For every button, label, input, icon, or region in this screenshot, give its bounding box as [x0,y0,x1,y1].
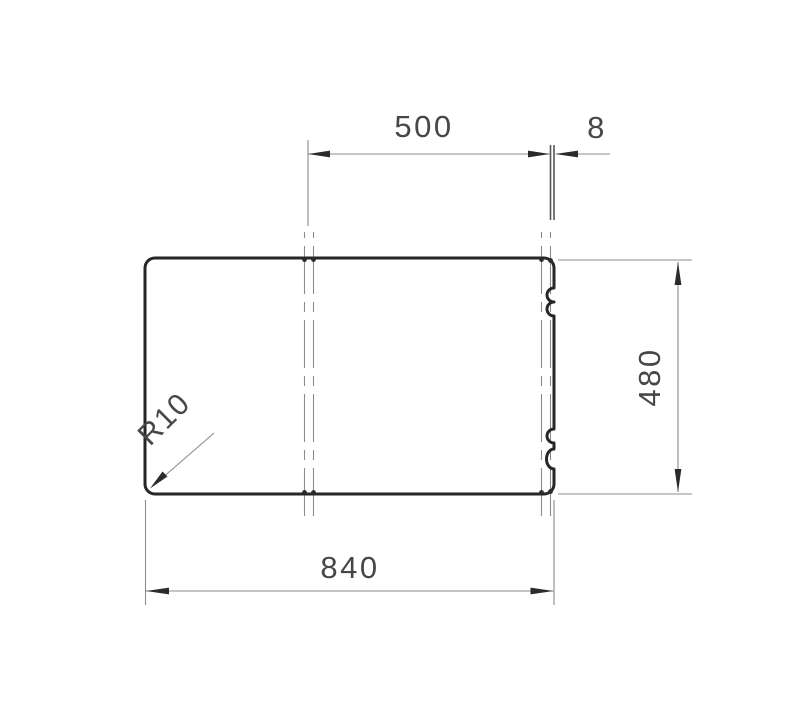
intersection-dot [539,257,544,262]
intersection-dot [311,490,316,495]
dimension-480: 480 [558,260,692,494]
arrowhead-right-icon [531,588,554,595]
dimension-840: 840 [146,500,555,605]
intersection-dot [302,490,307,495]
dim-label-8: 8 [587,110,607,145]
intersection-dot [302,257,307,262]
centerline-right-pair [542,232,551,518]
arrowhead-left-icon [146,588,169,595]
dim-label-480: 480 [632,347,667,406]
intersection-dot [548,489,553,494]
cutout-outline [145,258,554,494]
dim-label-500: 500 [394,109,453,144]
intersection-dots [302,257,553,495]
centerline-left-pair [305,232,314,518]
arrowhead-down-icon [675,469,682,492]
drawing-canvas: 500 8 480 840 R10 [0,0,810,716]
dim-label-840: 840 [320,550,379,585]
intersection-dot [539,490,544,495]
intersection-dot [311,257,316,262]
intersection-dot [548,258,553,263]
technical-drawing: 500 8 480 840 R10 [0,0,810,716]
arrowhead-left-icon [308,151,330,158]
dim-label-r10: R10 [132,387,197,452]
arrowhead-inward-icon [555,151,578,158]
arrowhead-up-icon [675,262,682,285]
leader-arrowhead-icon [150,472,168,489]
dimension-500: 500 8 [308,109,610,226]
arrowhead-right-icon [528,151,550,158]
